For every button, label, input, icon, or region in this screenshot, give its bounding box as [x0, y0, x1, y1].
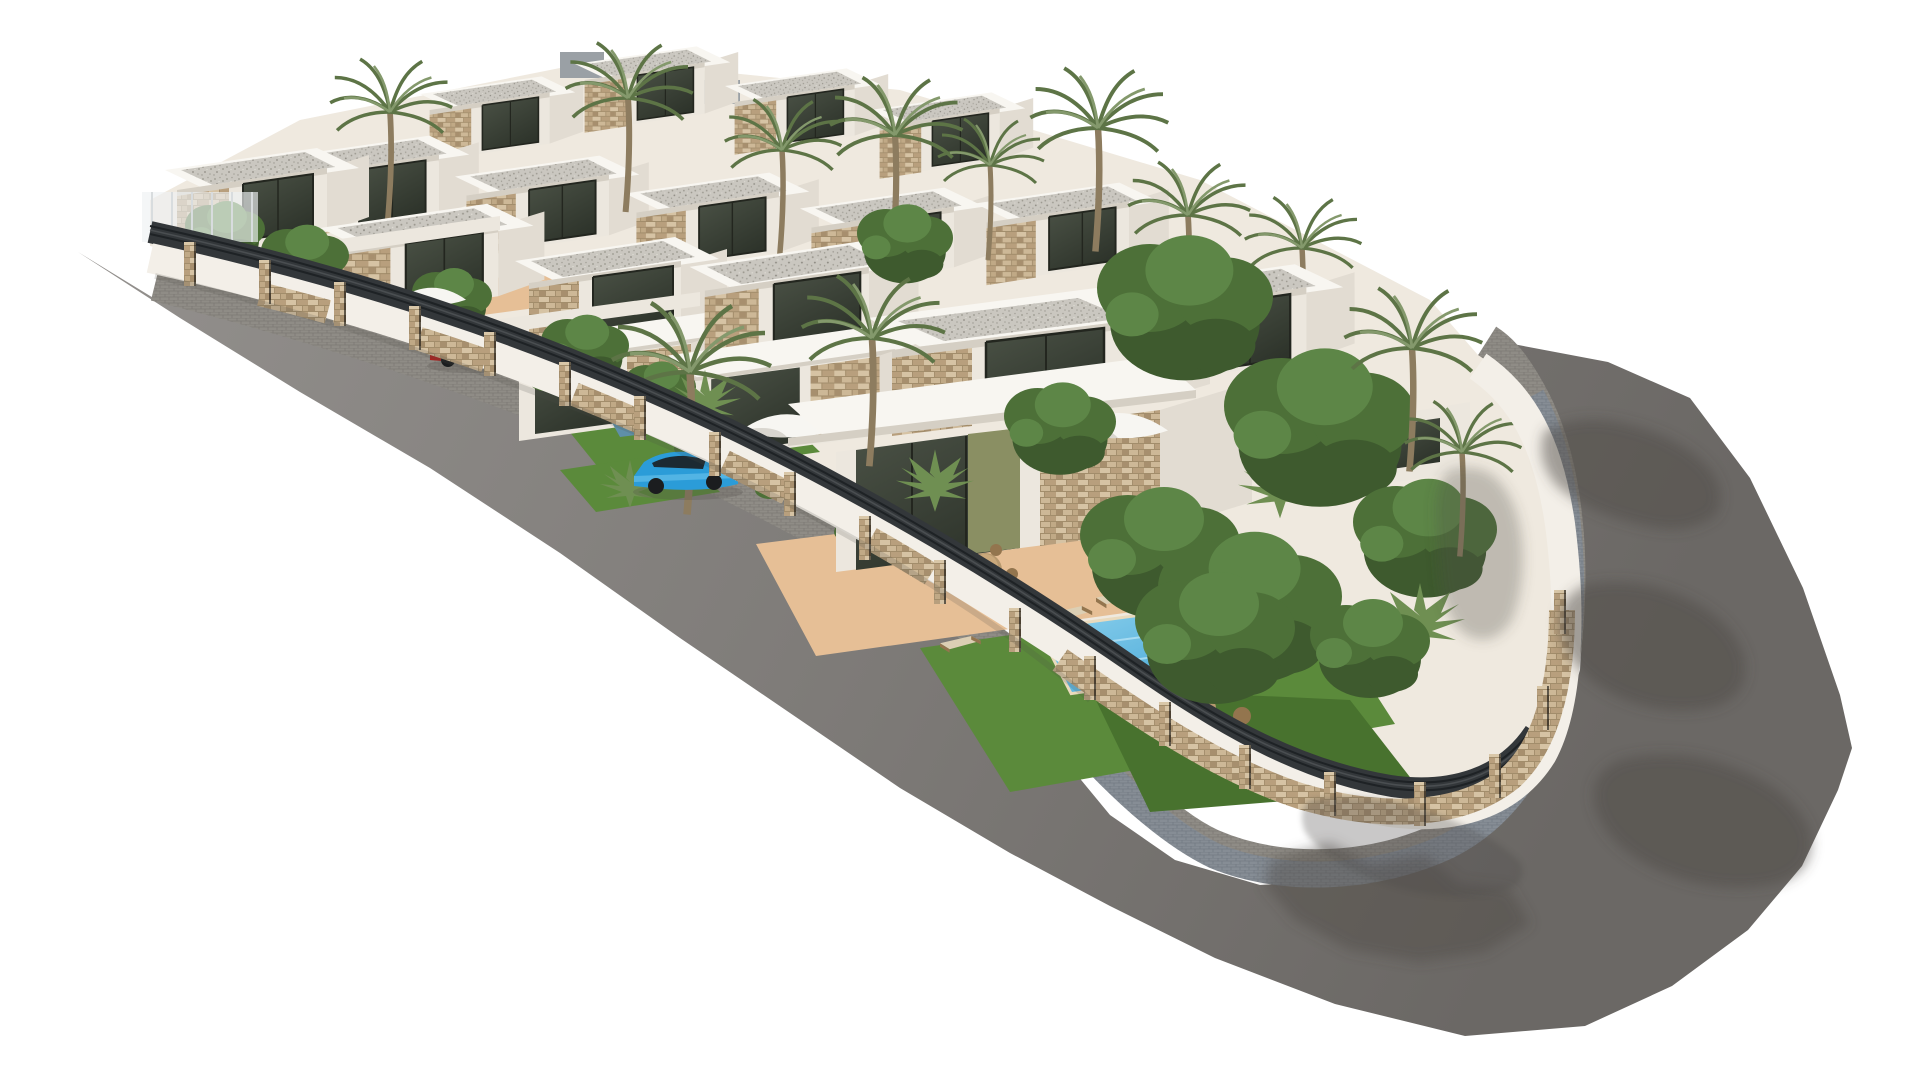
chair [990, 544, 1002, 556]
render-canvas: 3D architectural rendering of a gated hi… [0, 0, 1918, 1080]
architectural-rendering: 3D architectural rendering of a gated hi… [0, 0, 1918, 1080]
